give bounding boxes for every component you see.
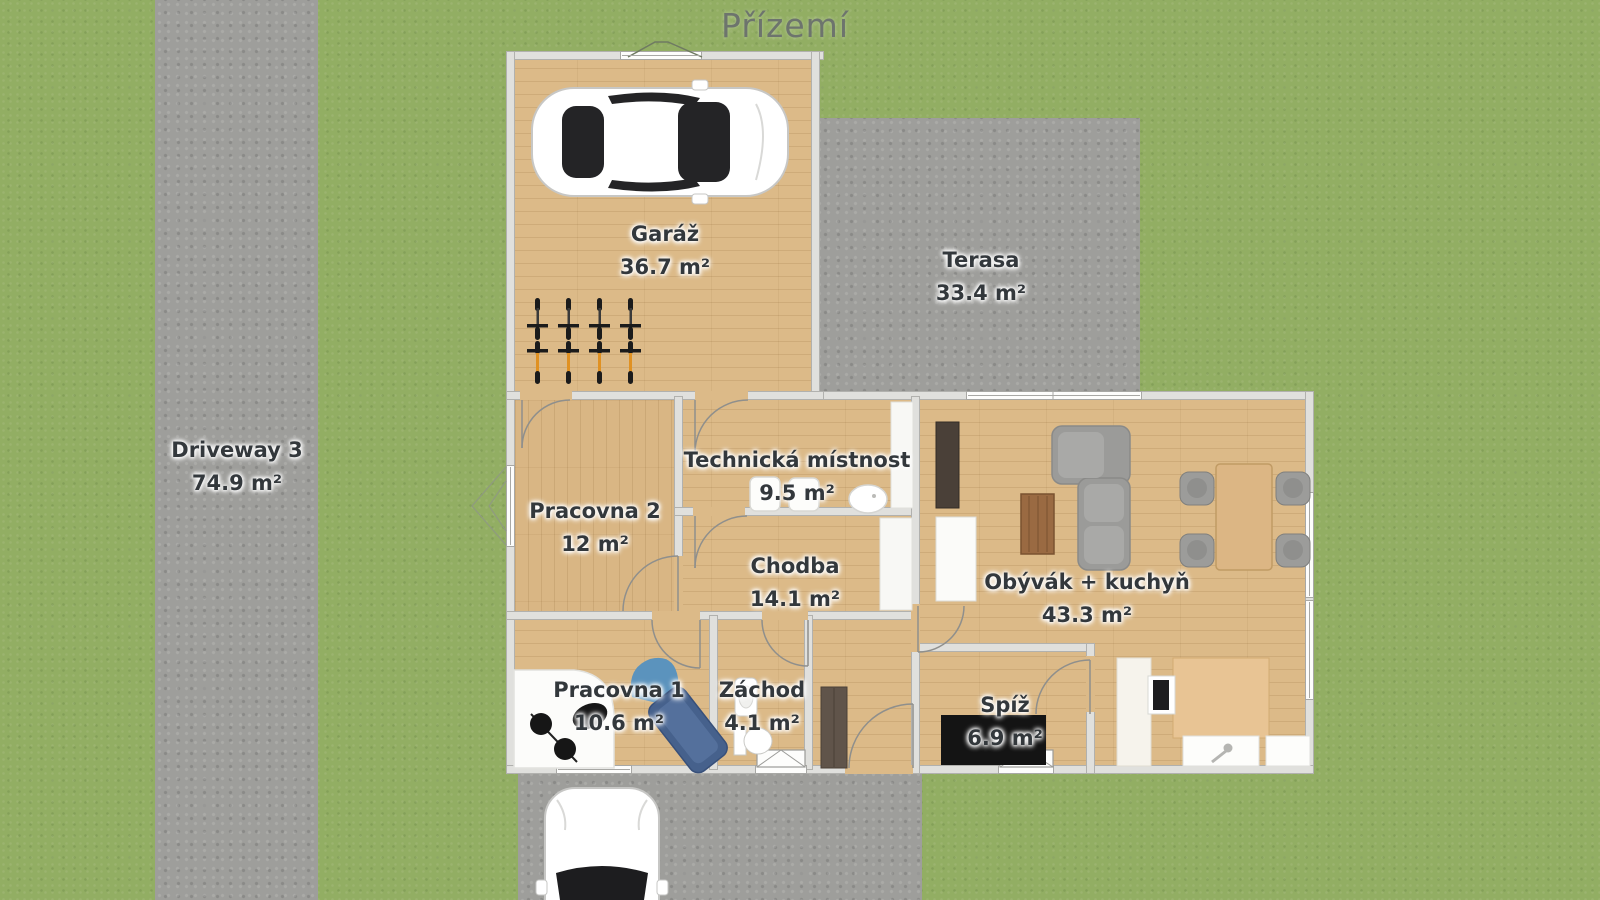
kitchen-counter-right[interactable] [1266,736,1310,766]
room-area: 6.9 m² [967,722,1043,755]
room-name: Chodba [750,550,840,583]
bicycle [527,298,548,340]
room-name: Spíž [967,689,1043,722]
door-swing[interactable] [522,400,570,448]
car-garage[interactable] [532,80,788,204]
room-area: 33.4 m² [936,277,1026,310]
dining-chair[interactable] [1180,472,1214,505]
room-label-terasa: Terasa 33.4 m² [936,244,1026,310]
dining-chair[interactable] [1276,534,1310,567]
bicycle-rack-row2[interactable] [527,341,641,384]
door-swing[interactable] [623,556,678,611]
room-area: 14.1 m² [750,583,840,616]
bicycle [620,341,641,384]
dining-chair[interactable] [1180,534,1214,567]
room-name: Garáž [620,218,710,251]
bicycle [558,341,579,384]
bicycle [558,298,579,340]
room-area: 4.1 m² [719,707,805,740]
kitchen-counter[interactable] [1117,658,1151,766]
room-label-driveway: Driveway 3 74.9 m² [171,434,302,500]
roof-gable-line [628,42,702,57]
room-name: Technická místnost [684,444,911,477]
floor-title: Přízemí [721,6,849,45]
room-label-spiz: Spíž 6.9 m² [967,689,1043,755]
oven[interactable] [1148,676,1175,714]
kitchen-island[interactable] [1173,658,1269,738]
car-driveway[interactable] [536,788,668,900]
bicycle [589,298,610,340]
room-area: 9.5 m² [684,477,911,510]
tv-stand[interactable] [936,422,959,508]
bicycle [620,298,641,340]
room-label-pracovna1: Pracovna 1 10.6 m² [553,674,685,740]
room-label-technicka: Technická místnost 9.5 m² [684,444,911,510]
entry-door-swing[interactable] [849,704,913,768]
room-name: Pracovna 2 [529,495,661,528]
room-label-garaz: Garáž 36.7 m² [620,218,710,284]
room-area: 74.9 m² [171,467,302,500]
door-swing[interactable] [1036,660,1090,714]
white-cabinet[interactable] [936,517,976,601]
room-name: Obývák + kuchyň [984,566,1190,599]
door-swing[interactable] [762,620,808,666]
room-area: 43.3 m² [984,599,1190,632]
dining-table[interactable] [1216,464,1272,570]
room-name: Záchod [719,674,805,707]
room-label-zachod: Záchod 4.1 m² [719,674,805,740]
door-swing[interactable] [695,516,747,568]
room-label-chodba: Chodba 14.1 m² [750,550,840,616]
bicycle-rack-row1[interactable] [527,298,641,340]
sofa-sectional[interactable] [1052,426,1130,570]
kitchen-sink-counter[interactable] [1183,736,1259,766]
room-area: 10.6 m² [553,707,685,740]
room-label-pracovna2: Pracovna 2 12 m² [529,495,661,561]
bicycle [527,341,548,384]
floor-plan-canvas: Garáž 36.7 m² Terasa 33.4 m² Driveway 3 … [0,0,1600,900]
dining-chair[interactable] [1276,472,1310,505]
hall-closet[interactable] [880,518,912,610]
room-area: 12 m² [529,528,661,561]
door-swing[interactable] [918,606,964,652]
room-name: Driveway 3 [171,434,302,467]
room-label-obyvak: Obývák + kuchyň 43.3 m² [984,566,1190,632]
wardrobe[interactable] [821,687,847,768]
room-name: Terasa [936,244,1026,277]
room-name: Pracovna 1 [553,674,685,707]
window-opening-indicator [472,467,506,545]
bicycle [589,341,610,384]
coffee-table[interactable] [1021,494,1054,554]
room-area: 36.7 m² [620,251,710,284]
